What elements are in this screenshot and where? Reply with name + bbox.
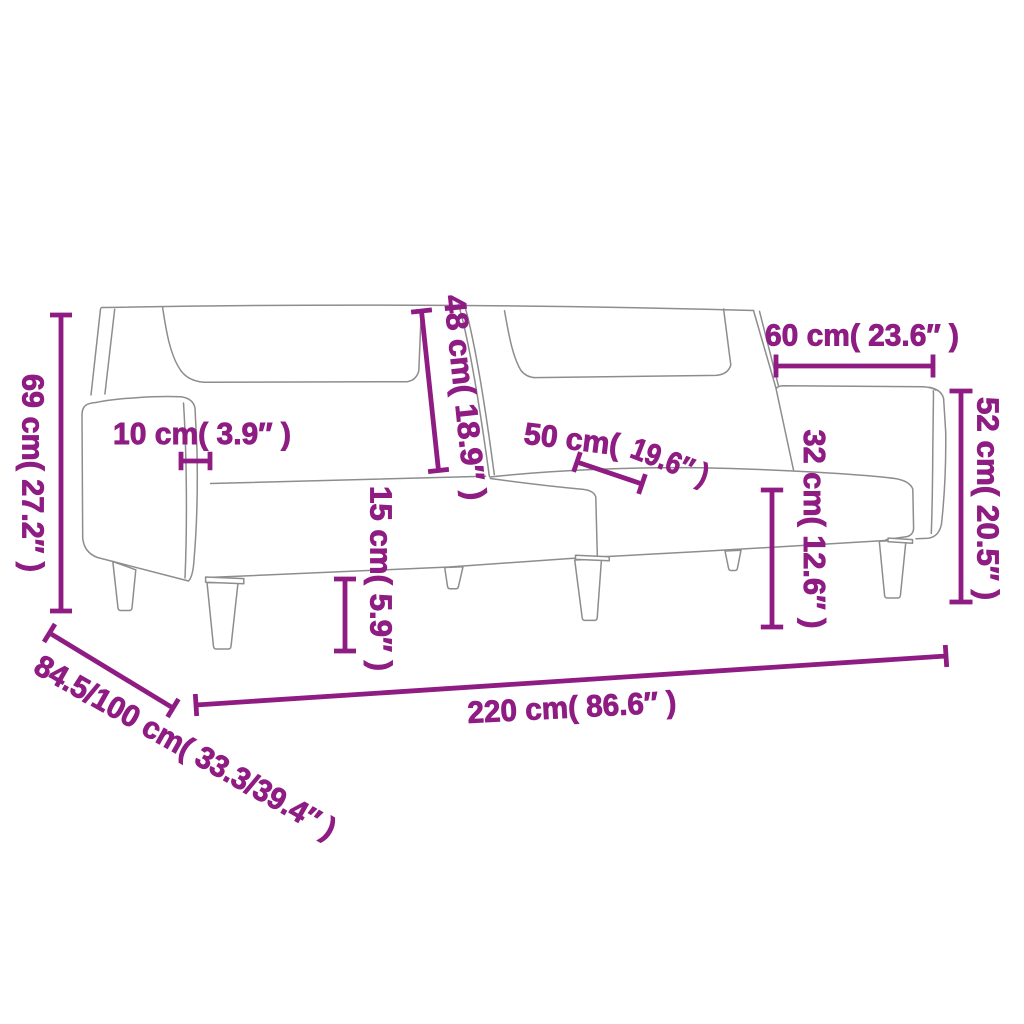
- svg-text:69 cm( 27.2″ ): 69 cm( 27.2″ ): [15, 374, 49, 572]
- svg-text:32 cm( 12.6″ ): 32 cm( 12.6″ ): [797, 430, 831, 629]
- svg-text:60 cm( 23.6″ ): 60 cm( 23.6″ ): [765, 319, 959, 353]
- svg-text:52 cm( 20.5″ ): 52 cm( 20.5″ ): [971, 397, 1005, 600]
- svg-text:10 cm( 3.9″ ): 10 cm( 3.9″ ): [113, 417, 291, 451]
- svg-text:15 cm( 5.9″ ): 15 cm( 5.9″ ): [364, 486, 398, 671]
